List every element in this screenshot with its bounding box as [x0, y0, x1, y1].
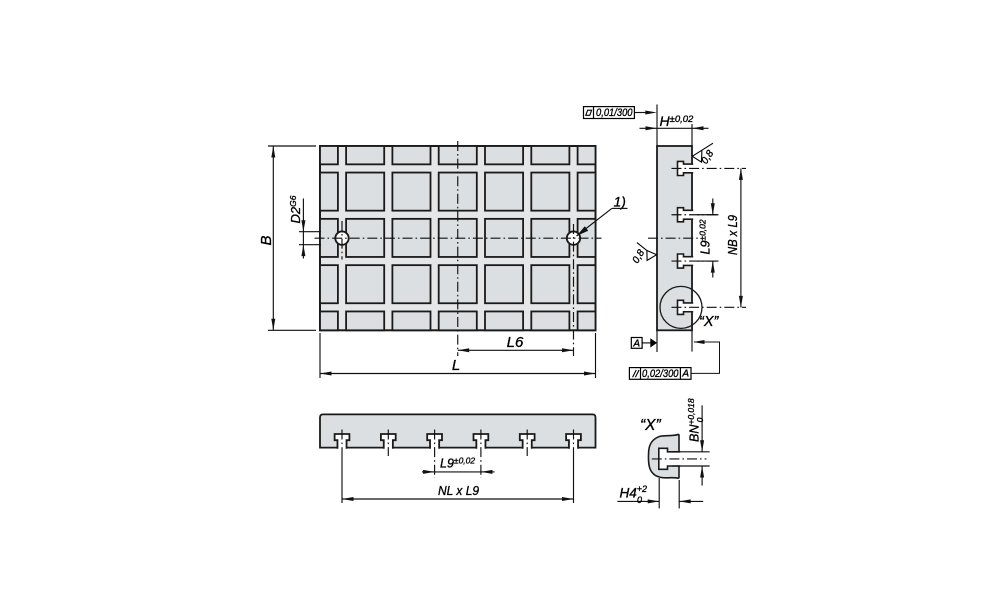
svg-text:L9±0,02: L9±0,02 [440, 456, 475, 471]
svg-text:B: B [258, 235, 275, 245]
svg-text:L: L [452, 357, 460, 374]
svg-text:0,02/300: 0,02/300 [642, 368, 679, 380]
svg-text:L9±0,02: L9±0,02 [698, 219, 713, 254]
svg-text:0,01/300: 0,01/300 [596, 107, 633, 119]
svg-text:NB x L9: NB x L9 [726, 215, 740, 255]
svg-text:“X”: “X” [699, 314, 720, 330]
svg-text:“X”: “X” [640, 417, 662, 434]
svg-text:L6: L6 [507, 334, 524, 351]
svg-text:H±0,02: H±0,02 [660, 113, 695, 129]
svg-text:0,8: 0,8 [631, 248, 648, 266]
svg-text:A: A [681, 369, 689, 380]
svg-text:D2G6: D2G6 [288, 195, 303, 223]
svg-text:NL x L9: NL x L9 [438, 484, 479, 498]
svg-text:1): 1) [614, 194, 626, 210]
svg-text:A: A [632, 338, 640, 349]
